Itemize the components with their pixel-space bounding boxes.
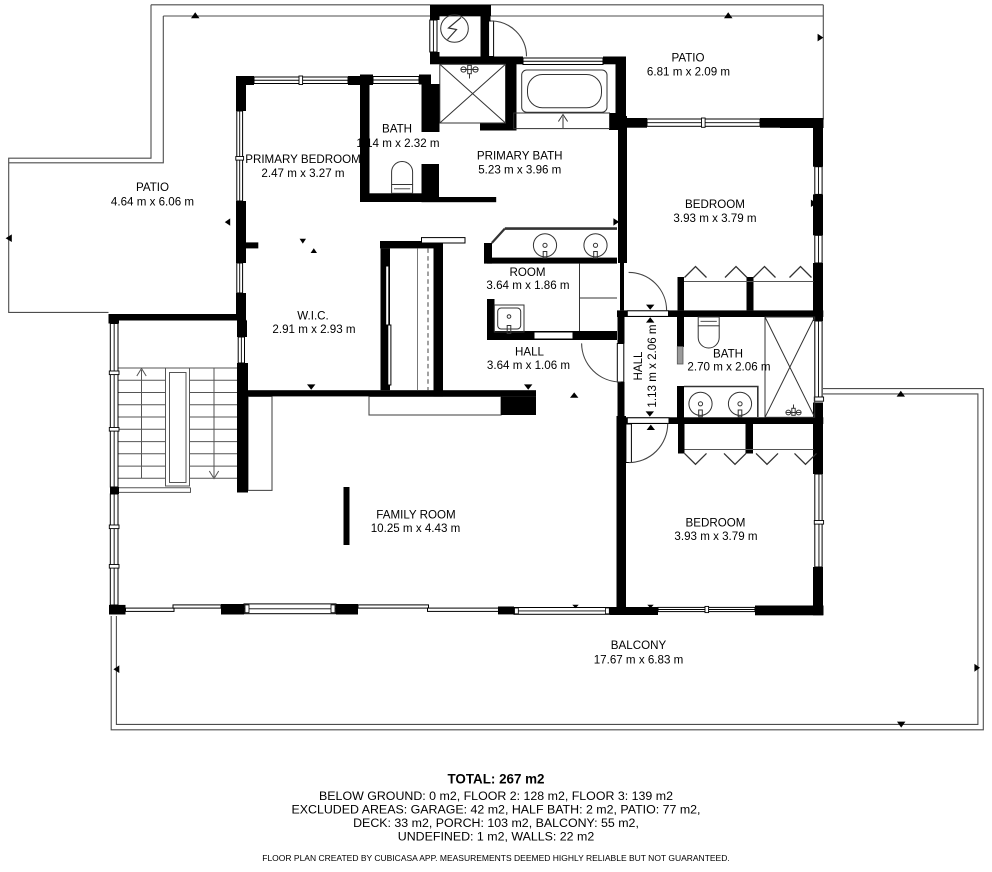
svg-text:BATH: BATH xyxy=(713,348,743,361)
svg-text:2.91 m x 2.93 m: 2.91 m x 2.93 m xyxy=(272,323,355,336)
svg-text:4.64 m x 6.06 m: 4.64 m x 6.06 m xyxy=(111,196,194,209)
svg-text:3.93 m x 3.79 m: 3.93 m x 3.79 m xyxy=(674,530,757,543)
svg-text:W.I.C.: W.I.C. xyxy=(297,310,329,323)
svg-text:3.64 m x 1.86 m: 3.64 m x 1.86 m xyxy=(486,279,569,292)
svg-text:10.25 m x 4.43 m: 10.25 m x 4.43 m xyxy=(371,522,461,535)
svg-text:1.14 m x 2.32 m: 1.14 m x 2.32 m xyxy=(356,137,439,150)
svg-text:BELOW GROUND: 0 m2, FLOOR 2: 1: BELOW GROUND: 0 m2, FLOOR 2: 128 m2, FLO… xyxy=(319,789,673,803)
svg-text:PATIO: PATIO xyxy=(671,52,704,65)
svg-text:TOTAL: 267 m2: TOTAL: 267 m2 xyxy=(448,772,545,787)
svg-text:BEDROOM: BEDROOM xyxy=(686,517,746,530)
svg-text:BEDROOM: BEDROOM xyxy=(685,198,745,211)
svg-text:FLOOR PLAN CREATED BY CUBICASA: FLOOR PLAN CREATED BY CUBICASA APP. MEAS… xyxy=(262,853,729,863)
svg-text:BATH: BATH xyxy=(382,123,412,136)
svg-text:DECK: 33 m2, PORCH: 103 m2, BA: DECK: 33 m2, PORCH: 103 m2, BALCONY: 55 … xyxy=(353,816,639,830)
svg-text:2.47 m x 3.27 m: 2.47 m x 3.27 m xyxy=(261,167,344,180)
svg-text:PATIO: PATIO xyxy=(136,181,169,194)
svg-text:3.64 m x 1.06 m: 3.64 m x 1.06 m xyxy=(487,359,570,372)
svg-text:PRIMARY BEDROOM: PRIMARY BEDROOM xyxy=(245,153,361,166)
svg-text:17.67 m x 6.83 m: 17.67 m x 6.83 m xyxy=(594,654,684,667)
svg-text:HALL: HALL xyxy=(632,351,645,381)
svg-text:PRIMARY BATH: PRIMARY BATH xyxy=(477,149,563,162)
svg-text:EXCLUDED AREAS: GARAGE: 42 m2,: EXCLUDED AREAS: GARAGE: 42 m2, HALF BATH… xyxy=(291,803,700,817)
svg-text:BALCONY: BALCONY xyxy=(611,639,667,652)
svg-text:ROOM: ROOM xyxy=(509,266,545,279)
svg-text:HALL: HALL xyxy=(515,346,545,359)
svg-text:FAMILY ROOM: FAMILY ROOM xyxy=(376,509,455,522)
svg-text:2.70 m x 2.06 m: 2.70 m x 2.06 m xyxy=(687,361,770,374)
svg-text:6.81 m x 2.09 m: 6.81 m x 2.09 m xyxy=(647,66,730,79)
svg-text:UNDEFINED: 1 m2, WALLS: 22 m2: UNDEFINED: 1 m2, WALLS: 22 m2 xyxy=(398,830,595,844)
svg-text:1.13 m x 2.06 m: 1.13 m x 2.06 m xyxy=(646,324,659,407)
svg-text:5.23 m x 3.96 m: 5.23 m x 3.96 m xyxy=(478,163,561,176)
svg-text:3.93 m x 3.79 m: 3.93 m x 3.79 m xyxy=(673,212,756,225)
